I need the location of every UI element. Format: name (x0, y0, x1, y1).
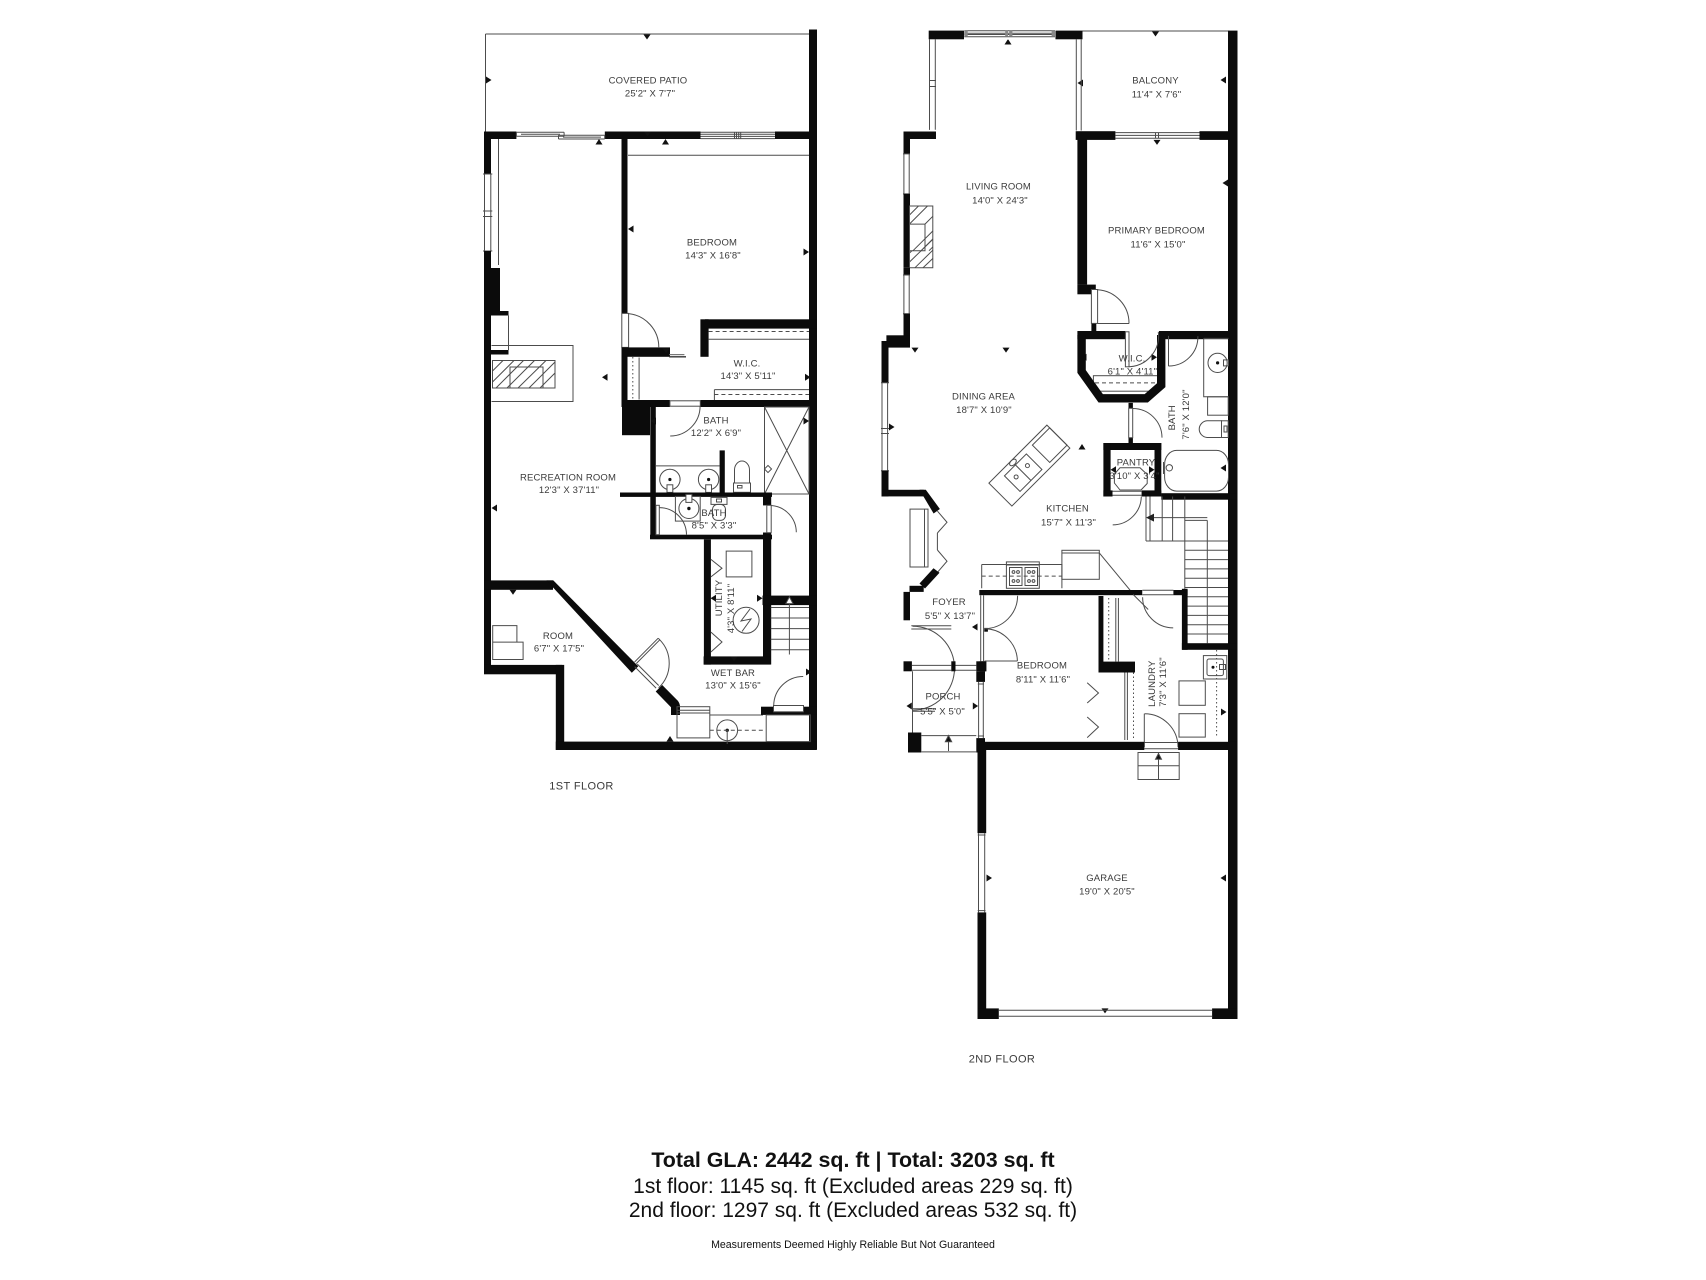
svg-text:FOYER: FOYER (932, 597, 965, 608)
svg-text:14'3" X 16'8": 14'3" X 16'8" (685, 251, 741, 262)
svg-text:11'4" X 7'6": 11'4" X 7'6" (1132, 90, 1182, 101)
svg-text:1ST FLOOR: 1ST FLOOR (549, 781, 614, 793)
svg-text:5'5" X 13'7": 5'5" X 13'7" (925, 611, 975, 622)
svg-text:BATH: BATH (1167, 405, 1178, 430)
svg-text:Measurements Deemed Highly Rel: Measurements Deemed Highly Reliable But … (711, 1239, 995, 1251)
svg-text:1st floor: 1145 sq. ft (Exclud: 1st floor: 1145 sq. ft (Excluded areas 2… (633, 1175, 1073, 1198)
svg-text:PANTRY: PANTRY (1117, 458, 1156, 469)
svg-text:W.I.C.: W.I.C. (1119, 354, 1146, 365)
svg-text:2ND FLOOR: 2ND FLOOR (969, 1054, 1036, 1066)
svg-text:7'6" X 12'0": 7'6" X 12'0" (1181, 389, 1192, 439)
svg-text:25'2" X 7'7": 25'2" X 7'7" (625, 89, 675, 100)
svg-text:6'7" X 17'5": 6'7" X 17'5" (534, 644, 584, 655)
svg-text:11'6" X 15'0": 11'6" X 15'0" (1131, 240, 1186, 251)
svg-text:8'11" X 11'6": 8'11" X 11'6" (1016, 675, 1070, 686)
svg-text:KITCHEN: KITCHEN (1046, 504, 1089, 515)
svg-text:PRIMARY BEDROOM: PRIMARY BEDROOM (1108, 226, 1205, 237)
svg-text:ROOM: ROOM (543, 631, 573, 642)
svg-text:BALCONY: BALCONY (1132, 76, 1179, 87)
svg-text:19'0" X 20'5": 19'0" X 20'5" (1079, 887, 1135, 898)
svg-text:COVERED PATIO: COVERED PATIO (609, 76, 688, 87)
svg-text:W.I.C.: W.I.C. (734, 359, 761, 370)
svg-text:7'3" X 11'6": 7'3" X 11'6" (1158, 657, 1169, 707)
svg-text:15'7" X 11'3": 15'7" X 11'3" (1041, 518, 1096, 529)
svg-text:3'10" X 3'4": 3'10" X 3'4" (1109, 471, 1159, 482)
svg-text:WET BAR: WET BAR (711, 668, 755, 679)
svg-text:5'5" X 5'0": 5'5" X 5'0" (920, 707, 965, 718)
svg-text:BATH: BATH (701, 508, 726, 519)
svg-text:14'0" X 24'3": 14'0" X 24'3" (972, 196, 1028, 207)
svg-text:BEDROOM: BEDROOM (1017, 661, 1067, 672)
svg-text:BEDROOM: BEDROOM (687, 238, 737, 249)
svg-text:18'7" X 10'9": 18'7" X 10'9" (956, 405, 1012, 416)
svg-text:UTILITY: UTILITY (714, 579, 725, 616)
svg-text:PORCH: PORCH (925, 692, 960, 703)
svg-text:LAUNDRY: LAUNDRY (1147, 660, 1158, 707)
svg-text:12'2" X 6'9": 12'2" X 6'9" (691, 428, 741, 439)
svg-text:12'3" X 37'11": 12'3" X 37'11" (539, 485, 599, 496)
svg-text:4'3" X 8'11": 4'3" X 8'11" (726, 584, 737, 634)
svg-text:DINING AREA: DINING AREA (952, 392, 1015, 403)
svg-text:BATH: BATH (703, 416, 728, 427)
svg-text:13'0" X 15'6": 13'0" X 15'6" (705, 681, 761, 692)
svg-text:GARAGE: GARAGE (1086, 873, 1128, 884)
svg-text:8'5" X 3'3": 8'5" X 3'3" (692, 521, 737, 532)
svg-text:Total GLA: 2442 sq. ft | Total: Total GLA: 2442 sq. ft | Total: 3203 sq.… (651, 1148, 1054, 1172)
svg-text:14'3" X 5'11": 14'3" X 5'11" (721, 371, 776, 382)
svg-text:2nd floor: 1297 sq. ft (Exclud: 2nd floor: 1297 sq. ft (Excluded areas 5… (629, 1199, 1077, 1222)
svg-text:6'1" X 4'11": 6'1" X 4'11" (1108, 367, 1158, 378)
svg-text:LIVING ROOM: LIVING ROOM (966, 182, 1031, 193)
svg-text:RECREATION ROOM: RECREATION ROOM (520, 473, 616, 484)
